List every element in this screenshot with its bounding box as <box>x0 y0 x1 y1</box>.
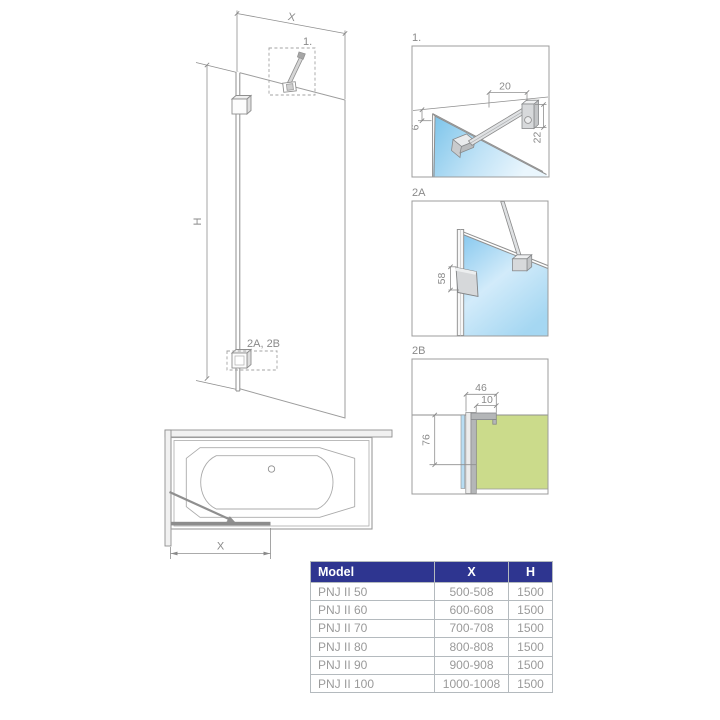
drain-icon <box>268 466 274 472</box>
detail-2b: 2B 76 <box>412 345 548 494</box>
wall-profile-rail <box>236 72 240 391</box>
handle-plate <box>455 268 478 297</box>
tub-width-dimension: X <box>171 528 271 559</box>
dim-46-label: 46 <box>475 382 487 394</box>
width-dim-label: X <box>287 11 297 24</box>
glass-section <box>461 415 465 489</box>
table-row: PNJ II 90 900-908 1500 <box>311 656 553 674</box>
h-cell: 1500 <box>509 601 553 619</box>
x-cell: 700-708 <box>435 619 509 637</box>
h-cell: 1500 <box>509 674 553 692</box>
col-header-model: Model <box>311 562 435 583</box>
mounting-bracket-top <box>232 96 251 115</box>
dim-20-label: 20 <box>499 81 511 93</box>
x-cell: 1000-1008 <box>435 674 509 692</box>
main-view: X H <box>192 11 347 419</box>
detail-2b-label: 2B <box>412 345 425 357</box>
table-row: PNJ II 70 700-708 1500 <box>311 619 553 637</box>
x-cell: 800-808 <box>435 638 509 656</box>
dim-6-label: 6 <box>409 124 421 130</box>
tub-rim-section <box>476 415 548 489</box>
height-dim-label: H <box>192 217 204 225</box>
dim-22-label: 22 <box>532 132 544 144</box>
col-header-h: H <box>509 562 553 583</box>
table-row: PNJ II 60 600-608 1500 <box>311 601 553 619</box>
screen-closed <box>171 522 271 526</box>
wall-left <box>165 430 171 546</box>
table-row: PNJ II 80 800-808 1500 <box>311 638 553 656</box>
col-header-x: X <box>435 562 509 583</box>
x-cell: 600-608 <box>435 601 509 619</box>
glass-panel <box>237 72 345 418</box>
model-cell: PNJ II 80 <box>311 638 435 656</box>
product-spec-page: X H <box>0 0 720 720</box>
x-cell: 500-508 <box>435 583 509 601</box>
detail-1-label: 1. <box>412 32 421 44</box>
support-bar <box>283 52 306 92</box>
dim-76-label: 76 <box>421 434 433 446</box>
detail-1: 1. 6 <box>409 32 549 177</box>
detail-ref-bottom-label: 2A, 2B <box>247 338 280 350</box>
h-cell: 1500 <box>509 638 553 656</box>
dim-10-label: 10 <box>481 394 493 406</box>
detail-2a: 2A 58 <box>412 187 548 336</box>
detail-ref-top-label: 1. <box>303 36 312 48</box>
mounting-bracket-bottom <box>232 350 251 369</box>
model-cell: PNJ II 70 <box>311 619 435 637</box>
x-cell: 900-908 <box>435 656 509 674</box>
model-cell: PNJ II 100 <box>311 674 435 692</box>
model-cell: PNJ II 60 <box>311 601 435 619</box>
table-row: PNJ II 50 500-508 1500 <box>311 583 553 601</box>
h-cell: 1500 <box>509 656 553 674</box>
model-cell: PNJ II 50 <box>311 583 435 601</box>
wall-top <box>165 430 392 437</box>
size-table: Model X H PNJ II 50 500-508 1500 PNJ II … <box>310 561 553 693</box>
h-cell: 1500 <box>509 583 553 601</box>
table-header-row: Model X H <box>311 562 553 583</box>
dim-58-label: 58 <box>436 273 448 285</box>
h-cell: 1500 <box>509 619 553 637</box>
height-dimension: H <box>192 63 237 390</box>
model-cell: PNJ II 90 <box>311 656 435 674</box>
bathtub-plan-view: X <box>165 430 392 559</box>
bathtub <box>171 438 372 530</box>
tub-width-dim-label: X <box>217 541 225 553</box>
detail-2a-label: 2A <box>412 187 426 199</box>
table-row: PNJ II 100 1000-1008 1500 <box>311 674 553 692</box>
